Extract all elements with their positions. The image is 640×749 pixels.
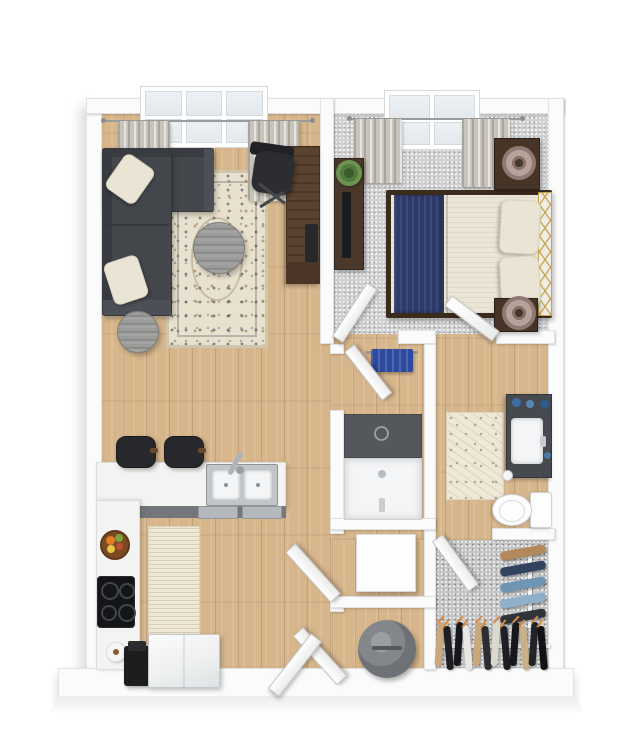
toilet-tank (530, 492, 552, 528)
floor-plan (0, 0, 640, 749)
desk-monitor (305, 224, 318, 262)
kitchen-runner-rug (148, 526, 200, 642)
wall-bedroom-bottom-segment (398, 330, 436, 344)
toilet-seat-ring (499, 500, 525, 522)
round-side-table (117, 311, 159, 353)
exterior-wall-right (548, 98, 564, 674)
tub-faucet (379, 498, 385, 512)
window-glass (186, 91, 223, 116)
sofa-cushion-seam (171, 152, 173, 210)
plant (336, 160, 362, 186)
window-glass (434, 95, 475, 119)
table-lamp (502, 296, 536, 330)
coffee-maker-top (128, 641, 146, 651)
soap-accessory (540, 400, 549, 409)
window-glass (145, 91, 182, 116)
window-glass (389, 95, 430, 119)
hanging-garment-side (500, 592, 547, 609)
dishwasher-panel (242, 506, 282, 519)
bed-pillow (499, 199, 542, 255)
sink-drain (224, 483, 228, 487)
cooktop-burner (101, 582, 119, 600)
sofa-chaise-end (204, 149, 214, 211)
office-chair-seat (250, 149, 295, 196)
closet-bottom-rack-items (436, 622, 550, 674)
bed-navy-runner (394, 195, 444, 313)
window-glass (226, 91, 263, 116)
table-lamp (502, 146, 536, 180)
washer (356, 534, 416, 592)
water-heater-handle (372, 646, 402, 650)
vanity-faucet (540, 436, 546, 447)
sofa-cushion-seam (106, 224, 168, 226)
toilet-paper-roll (502, 470, 513, 481)
hanging-garment (510, 622, 520, 666)
pastry (113, 649, 119, 655)
fruit (116, 543, 123, 550)
tub-drain (378, 470, 386, 478)
wall-bath-closet-vertical (424, 344, 436, 670)
curtain-rod-finial (347, 116, 352, 121)
wall-utility-divider (330, 596, 436, 608)
hanging-garment (537, 626, 548, 670)
blue-towel (371, 349, 413, 372)
window-pane (186, 91, 223, 143)
dishwasher-panel (198, 506, 238, 519)
wall-bath-closet-horizontal (492, 528, 555, 540)
duvet-fold-line (446, 195, 448, 313)
kitchen-faucet-base (236, 466, 244, 474)
hanging-garment-side (500, 560, 547, 577)
curtain-rod-finial (310, 118, 315, 123)
cooktop-burner (118, 604, 136, 622)
hanging-garment-side (500, 576, 547, 593)
fruit (107, 545, 115, 553)
bath-mat (446, 412, 504, 500)
cooktop-burner (101, 605, 117, 621)
hanging-garment (462, 626, 473, 670)
round-coffee-table (193, 222, 245, 274)
bar-stool-arm (198, 448, 206, 453)
wall-bedroom-bottom-segment (496, 330, 555, 344)
sink-drain (256, 483, 260, 487)
wall-hall-divider-top (330, 344, 344, 354)
shower-fixture (374, 426, 389, 441)
wall-hall-divider-mid (330, 410, 344, 534)
curtain-rod-finial (520, 116, 525, 121)
cooktop-burner (119, 583, 135, 599)
curtain-rod-finial (101, 118, 106, 123)
vanity-sink (511, 418, 543, 464)
coffee-maker (124, 646, 150, 686)
wall-living-bedroom-divider (320, 98, 334, 344)
refrigerator-door-gap (183, 634, 185, 688)
fruit (106, 536, 115, 545)
sofa-back-edge (102, 148, 214, 157)
window-glass (186, 119, 223, 144)
foundation-skirt (50, 696, 584, 712)
soap-accessory (512, 398, 521, 407)
soap-accessory (544, 452, 551, 459)
desk-lower-shelf (286, 262, 320, 284)
tv (342, 192, 351, 258)
soap-accessory (526, 400, 534, 408)
bar-stool-arm (150, 448, 158, 453)
fruit (115, 534, 123, 542)
